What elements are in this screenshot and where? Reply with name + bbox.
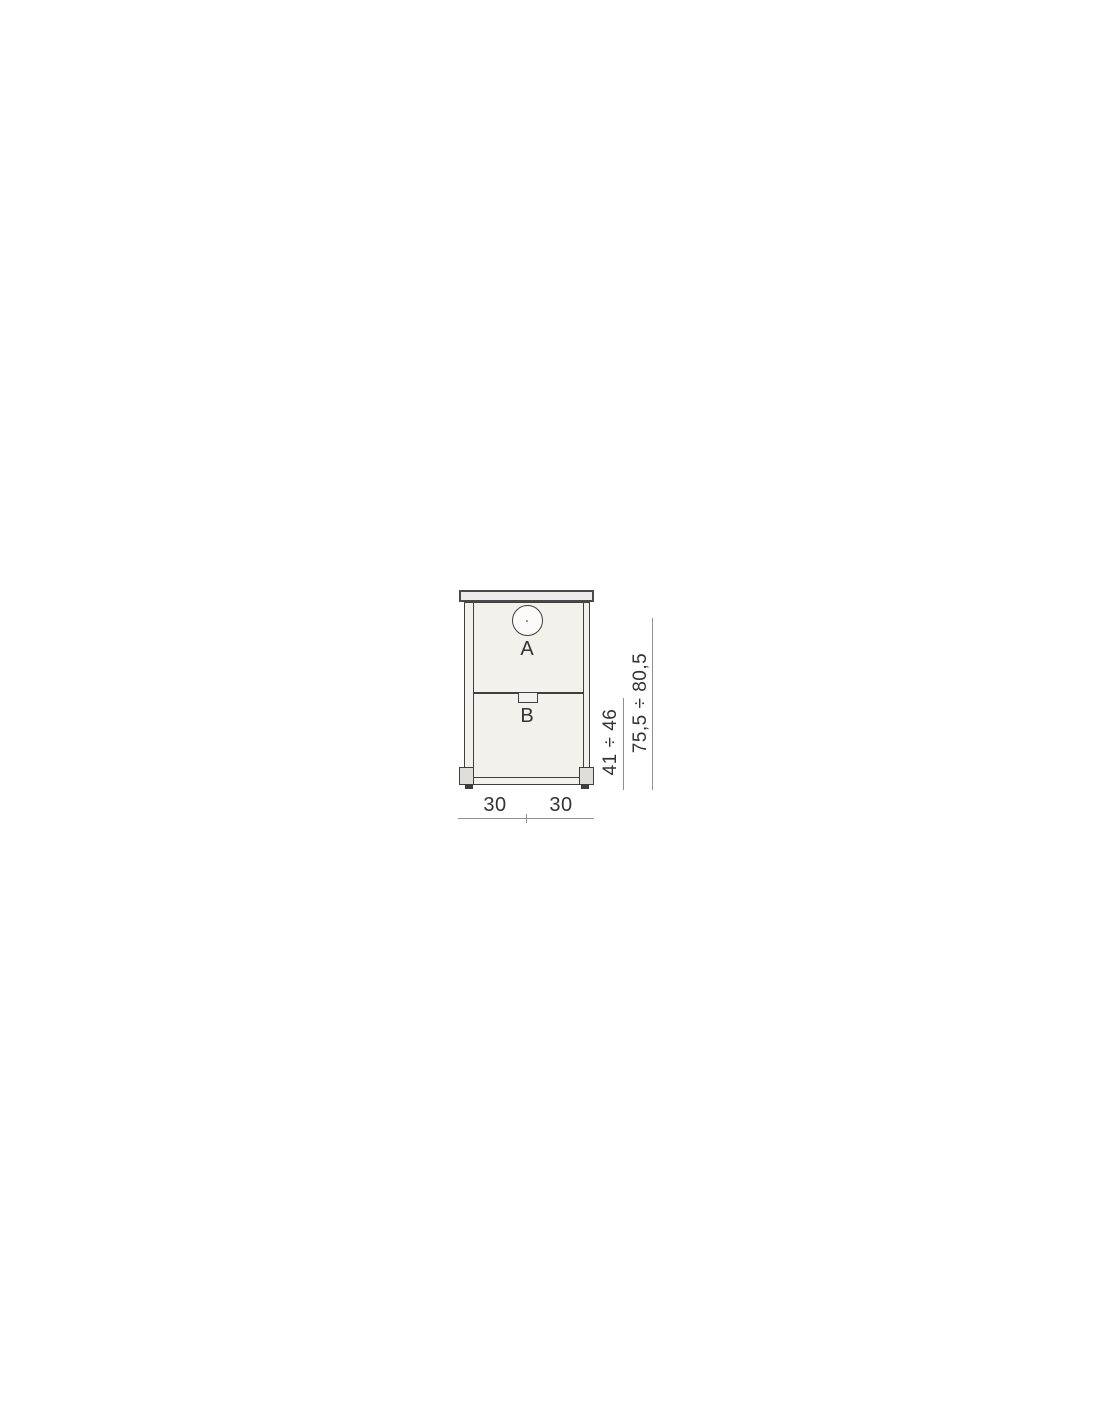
hole-a-center-dot [526, 620, 528, 622]
right-foot-block [579, 767, 594, 785]
left-frame-post-line [473, 602, 474, 767]
right-foot [581, 785, 589, 789]
left-foot [465, 785, 473, 789]
bottom-kick-rail [474, 777, 579, 785]
notch-b-rect [518, 692, 538, 703]
left-foot-block [459, 767, 474, 785]
dimension-label-width-left: 30 [475, 794, 515, 817]
dimension-label-total-height: 75,5 ÷ 80,5 [630, 633, 652, 773]
dimension-line-lower-height [623, 698, 624, 790]
technical-drawing-page: A B 41 ÷ 46 75,5 ÷ 80,5 30 30 [0, 0, 1100, 1422]
right-frame-post-line [583, 602, 584, 767]
dimension-line-total-height [652, 618, 653, 790]
dimension-width-center-tick [526, 814, 527, 823]
dimension-label-lower-height: 41 ÷ 46 [600, 682, 622, 802]
dimension-label-width-right: 30 [541, 794, 581, 817]
worktop-panel [459, 590, 594, 602]
label-notch-b: B [507, 705, 547, 728]
label-hole-a: A [507, 638, 547, 661]
